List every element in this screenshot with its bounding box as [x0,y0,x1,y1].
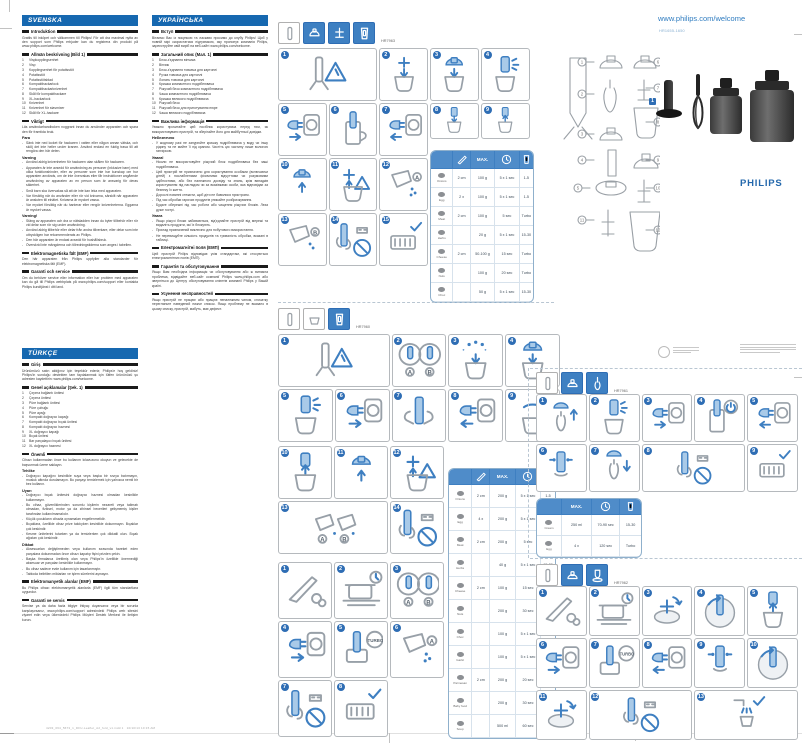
body-paragraph: Läs användarhandboken noggrant innan du … [22,125,138,134]
food-icon [457,491,464,496]
section-separator [530,368,802,369]
prep-cell: 4 x [472,508,490,531]
svg-text:1: 1 [581,60,584,65]
step-cell-8: 8 [430,103,479,139]
language-header: TÜRKÇE [22,348,138,359]
step-cell-8: 8 [642,638,693,688]
svg-text:*: * [485,348,487,354]
lid-on-icon [434,53,474,97]
amount-cell: 20 g [471,226,495,245]
steps-grid-compact-b: 10111213AB14 [278,446,444,554]
amount-cell: 200 g [490,692,515,715]
svg-text:6: 6 [657,60,660,65]
svg-text:B: B [426,599,431,606]
plug-out-icon [453,394,498,438]
clean-icon [395,506,440,550]
amount-cell: 200 g [490,669,515,692]
amount-cell: 200 g [490,600,515,623]
dish-ok-icon [384,218,424,262]
step-cell-2: 2 [334,562,388,619]
plug-out-icon [384,108,424,152]
whisk-attach-icon [540,398,582,438]
svg-text:12: 12 [656,228,660,233]
step-number: 8 [337,683,345,691]
sub-heading: Dikkat [22,543,138,547]
step-cell-12: 12 [589,690,693,740]
table-header-beaker [620,499,641,515]
prep-cell [472,692,490,715]
knife-icon [475,471,486,482]
ab-bowls-icon: AB [395,567,440,614]
step-cell-11: 11 [329,158,378,211]
bar-stand-warning-icon [287,339,381,383]
amount-cell: 100 g [490,623,515,646]
step-cell-13: 13B [278,213,327,266]
step-cell-7: 7 [278,680,332,737]
bullet-list: -Sänk inte ned locket för hackaren i vat… [22,141,138,154]
table-row: Herbs20 g5 x 1 sec15-30 [431,226,533,245]
table-row: Onions2 cm100 g5 x 1 sec1-5 [431,169,533,188]
step-cell-2: 2 [379,48,428,101]
step-number: 13 [281,504,289,512]
body-paragraph: Ürünümüzü satın aldığınız için teşekkür … [22,369,138,382]
svg-text:9: 9 [657,158,660,163]
step-cell-11: 11 [334,446,388,499]
motor-click-icon [485,53,525,97]
max-label: MAX. [477,157,488,162]
table-row: Cheese2 cm50-100 g15 secTurbo [431,245,533,264]
step-cell-5: 5 [747,586,798,636]
table-header-beaker [520,151,533,169]
whisk-icon [586,372,608,394]
svg-text:A: A [415,175,419,181]
crop-mark [0,733,14,734]
food-icon [438,211,445,216]
bar-icon [536,564,558,586]
lid-icon [303,22,325,44]
crop-mark [9,0,10,12]
step-number: 10 [750,641,758,649]
svg-text:A: A [408,370,413,376]
step-number: 7 [394,392,402,400]
pot-stove-icon [339,567,384,614]
svg-text:11: 11 [580,218,585,223]
step-cell-14: 14 [390,501,444,554]
speed-cell: Turbo [520,207,533,226]
body-paragraph: Den här apparaten från Philips uppfyller… [22,257,138,266]
svg-text:2: 2 [581,92,584,97]
bullet-list: -Använd aldrig knivenheten för hackaren … [22,160,138,212]
step-number: 6 [539,447,547,455]
step-number: 14 [331,216,339,224]
beaker-icon [353,22,375,44]
amount-cell: 200 g [490,485,515,508]
accessory-model-label: HR7963 [381,39,395,43]
step-number: 6 [393,624,401,632]
food-cell: Cheese [431,245,453,264]
step-number: 2 [394,337,402,345]
svg-text:TURBO: TURBO [367,638,383,643]
step-number: 8 [451,392,459,400]
step-cell-6: 6 [536,638,587,688]
section-heading: Загальний опис (Мал. 1) [152,52,268,57]
table-row: Egg4 x120 secTurbo [537,536,641,557]
food-icon [457,698,464,703]
prep-cell: 2 cm [453,207,470,226]
food-icon [438,173,445,178]
motor-click-icon [593,398,635,438]
step-number: 2 [382,51,390,59]
svg-text:*: * [463,348,465,354]
disc-rotate-icon [752,642,794,683]
food-cell: Garlic [449,646,472,669]
section-heading: Önemli [22,452,138,457]
column-svenska: SVENSKAIntroduktionGrattis till inköpet … [22,15,138,347]
step-cell-7: 7 [392,389,447,442]
sub-heading: Varning! [22,214,138,218]
coupling-icon [561,564,583,586]
step-number: 13 [281,216,289,224]
accessory-strip-compact-chopper: HR7960 [278,308,370,330]
clean-icon [283,685,328,732]
step-cell-13: 13 [694,690,798,740]
step-cell-6: 6 [536,444,587,492]
step-cell-7: 7 [379,103,428,156]
step-number: 1 [281,337,289,345]
accessory-model-label: HR7962 [614,581,628,585]
press-release-icon [540,448,582,488]
table-header-max: MAX. [490,469,515,485]
step-cell-6: 6 [329,103,378,156]
table-header-food [537,499,562,515]
step-cell-2: 2 [589,586,640,636]
step-cell-4: 4 [694,586,745,636]
step-number: 4 [697,397,705,405]
step-cell-5: 5 [278,103,327,156]
food-cell: Onions [449,485,472,508]
whisk-off-icon [593,448,635,488]
step-number: 5 [281,392,289,400]
column-turkce: TÜRKÇEGirişÜrünümüzü satın aldığınız içi… [22,348,138,720]
food-icon [457,514,464,519]
step-number: 12 [382,161,390,169]
body-paragraph: Cihazı kullanmadan önce bu kullanım kıla… [22,458,138,467]
step-cell-2: 2AB [392,334,447,387]
clean-icon [333,218,373,262]
amount-cell: 100 g [471,207,495,226]
step-cell-5: 5 [747,394,798,442]
section-heading: Introduktion [22,29,138,34]
document-code: 4203_064_5673_1_DFU-Leaflet_A2_fold_v1.i… [46,726,155,730]
amount-cell: 50-100 g [471,245,495,264]
hold-bar-icon [396,394,441,438]
step-cell-2: 2 [589,394,640,442]
steps-grid-chopper-xl-right: 3489 [430,48,530,139]
prep-cell: 2 x [453,188,470,207]
step-cell-8: 8 [642,444,746,492]
pour-a-icon: A [395,626,440,673]
cut-icon [283,567,328,614]
food-icon [438,192,445,197]
bar-icon [278,308,300,330]
step-number: 8 [644,641,652,649]
svg-text:5: 5 [577,186,580,191]
parts-list: 1Vispkopplingsenhet2Visp3Kopplingsenhet … [22,58,138,115]
time-cell: 5 x 1 sec [495,188,519,207]
svg-text:10: 10 [656,186,660,191]
section-heading: Giriş [22,362,138,367]
step-cell-1: 1 [536,586,587,636]
section-separator [528,368,529,558]
table-header-max: MAX. [562,499,592,515]
section-heading: Viktigt [22,119,138,124]
body-paragraph: Grattis till inköpet och välkommen till … [22,36,138,49]
prep-cell: 2 cm [453,169,470,188]
clean-icon [650,448,737,488]
step-cell-8: 8 [334,680,388,737]
step-number: 3 [644,589,652,597]
step-number: 1 [281,51,289,59]
lid-off-icon [282,163,322,207]
fine-print [740,344,796,354]
time-cell: 70-90 sec [592,515,620,536]
step-number: 3 [433,51,441,59]
speed-cell: Turbo [520,264,533,283]
sub-heading: Varning [22,156,138,160]
time-cell: 5 x 1 sec [495,226,519,245]
section-heading: Garanti och service [22,269,138,274]
section-heading: Електромагнітні поля (ЕМП) [152,245,268,250]
step-number: 9 [508,392,516,400]
step-number: 5 [337,624,345,632]
step-number: 5 [281,106,289,114]
speed-cell: 15-30 [620,515,641,536]
motor-off-bowl-icon [752,590,794,631]
step-cell-14: 14 [329,213,378,266]
food-icon [457,652,464,657]
step-number: 9 [750,447,758,455]
table-row: Nuts100 g20 secTurbo [431,264,533,283]
prep-cell [453,283,470,302]
amount-cell: 40 g [490,554,515,577]
food-icon [457,560,464,565]
step-cell-12: 12 [390,446,444,499]
step-number: 2 [337,565,345,573]
bullet-list: -Якщо ріжучі блоки забиваються, від'єдна… [152,219,268,243]
time-cell: 15 sec [495,245,519,264]
food-cell: Egg [537,536,562,557]
model-range-label: HR1655-1650 [659,29,685,33]
steps-grid-masher: 1234567TURBO8910111213 [536,586,798,740]
step-cell-1: 1 [536,394,587,442]
dish-ok-icon [752,448,794,488]
blade-icon [328,22,350,44]
body-paragraph: Уважно прочитайте цей посібник користува… [152,125,268,134]
knife-icon [456,154,467,165]
plug-in-icon [282,108,322,152]
step-cell-4: 4 [278,621,332,678]
prep-cell: 2 cm [453,245,470,264]
plug-in-icon [283,626,328,673]
step-cell-3: 3AB [390,562,444,619]
food-cell: Egg [449,508,472,531]
food-icon [457,675,464,680]
max-label: MAX. [497,474,508,479]
bullet-list: -Ніколи не використовуйте ріжучий блок п… [152,160,268,212]
masher-photo [664,80,682,118]
section-heading: Усунення несправностей [152,291,268,296]
product-photo [652,68,798,144]
step-cell-9: 9 [747,444,798,492]
coupling-icon [561,372,583,394]
step-number: 11 [539,693,547,701]
step-number: 3 [451,337,459,345]
accessory-strip-chopper-xl: HR7963 [278,22,395,44]
body-paragraph: Якщо Вам необхідна інформація чи обслуго… [152,270,268,288]
plug-out-icon [646,642,688,683]
step-cell-3: 3 [642,394,693,442]
step-cell-3: 3 [642,586,693,636]
crop-mark [0,28,12,29]
table-header-food [449,469,472,485]
speed-cell: 15-30 [520,226,533,245]
section-separator [278,302,554,303]
philips-website-link: www.philips.com/welcome [658,14,745,23]
language-header: УКРАЇНСЬКА [152,15,268,26]
step-cell-15: 15 [379,213,428,266]
food-cell: Cheese [449,577,472,600]
time-cell: 5 x 1 sec [495,283,519,302]
food-cell: Nuts [449,600,472,623]
food-cell: Meat [449,531,472,554]
speed-cell: 15-30 [520,283,533,302]
section-heading: Allmän beskrivning (Bild 1) [22,52,138,57]
steps-grid-recipe: 123AB45TURBO6A78 [278,562,444,737]
step-cell-10: 10 [747,638,798,688]
steps-grid-compact-a: 12AB3**456789 [278,334,560,442]
disc-rotate-icon [699,590,741,631]
food-cell: Choc [449,623,472,646]
compact-chopper-photo [710,78,742,134]
sub-heading: Небезпечно [152,136,268,140]
step-cell-8: 8 [448,389,503,442]
food-icon [545,520,552,525]
step-number: 1 [539,397,547,405]
sub-heading: Увага [152,214,268,218]
step-number: 4 [508,337,516,345]
step-number: 9 [484,106,492,114]
prep-cell: 2 cm [472,531,490,554]
table-header-knife [453,151,470,169]
food-cell: Cream [537,515,562,536]
time-cell: 20 sec [495,264,519,283]
table-header-knife [472,469,490,485]
amount-cell: 50 g [471,283,495,302]
blade-out-warning-icon [395,451,440,495]
turbo-pot-icon: TURBO [593,642,635,683]
speed-cell: Turbo [520,245,533,264]
section-heading: Важлива інформація [152,119,268,124]
svg-text:B: B [342,537,347,543]
press-release-icon [699,642,741,683]
food-cell: Herbs [449,554,472,577]
steps-grid-whisk: 123456789 [536,394,798,492]
step-number: 6 [337,392,345,400]
clean-icon [597,694,684,735]
step-number: 4 [281,624,289,632]
svg-text:3: 3 [581,132,584,137]
step-number: 14 [393,504,401,512]
crop-mark [794,34,802,35]
food-cell: Choc [431,283,453,302]
pour-ab-icon: AB [287,506,380,550]
time-cell: 120 sec [592,536,620,557]
section-heading: Elektromagnetiska fält (EMF) [22,251,138,256]
step-number: 1 [281,565,289,573]
bar-stand-warning-icon [286,53,370,97]
bullet-list: -У жодному разі не занурюйте кришку подр… [152,141,268,154]
accessory-model-label: HR7960 [356,325,370,329]
svg-text:B: B [428,370,433,376]
exploded-parts-figure: 123456789101112 [536,48,660,348]
amount-cell: 500 ml [490,715,515,738]
step-number: 2 [591,397,599,405]
food-icon [438,268,445,273]
prep-cell: 2 cm [472,577,490,600]
food-icon [545,541,552,546]
step-number: 2 [591,589,599,597]
pot-stove-icon [593,590,635,631]
step-number: 7 [382,106,390,114]
clock-icon [600,501,611,512]
prep-cell [472,715,490,738]
bullet-list: -Doğrayıcı bıçak ünitesini doğrayıcı haz… [22,493,138,540]
prep-cell [472,646,490,669]
step-cell-4: 4 [694,394,745,442]
plug-out-icon [752,398,794,438]
manual-page: SVENSKAIntroduktionGrattis till inköpet … [0,0,802,755]
prep-cell [472,600,490,623]
blade-twist-icon [646,590,688,631]
food-icon [457,537,464,542]
food-cell: Onions [431,169,453,188]
svg-text:A: A [406,599,411,606]
body-paragraph: Якщо пристрій не працює або працює ненал… [152,298,268,311]
step-number: 6 [539,641,547,649]
step-number: 3 [393,565,401,573]
svg-text:4: 4 [581,158,584,163]
step-cell-10: 10 [278,158,327,211]
step-number: 5 [750,589,758,597]
step-number: 13 [697,693,705,701]
body-paragraph: Вітаємо Вас із покупкою та ласкаво проси… [152,36,268,49]
cut-icon [540,590,582,631]
food-icon [457,629,464,634]
accessory-strip-whisk: HR7961 [536,372,628,394]
eco-logo [658,346,699,358]
amount-cell: 200 g [490,531,515,554]
section-heading: Garanti ve servis [22,598,138,603]
beaker-icon [328,308,350,330]
step-cell-11: 11 [536,690,587,740]
blade-in-icon [384,53,424,97]
step-number: 4 [697,589,705,597]
sub-heading: Увага! [152,156,268,160]
food-table-whisk: MAX.Cream250 ml70-90 sec15-30Egg4 x120 s… [536,498,642,558]
food-cell: Meat [431,207,453,226]
table-header-clock [495,151,519,169]
food-cell: Baby food [449,692,472,715]
